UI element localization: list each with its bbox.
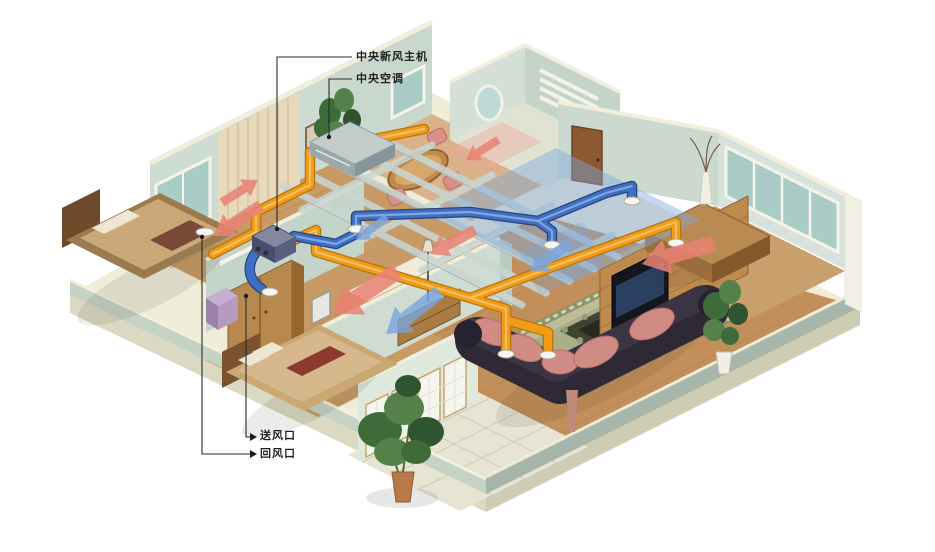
apartment-isometric-illustration bbox=[0, 0, 935, 552]
bathroom-mirror bbox=[476, 86, 502, 120]
label-central-ac: 中央空调 bbox=[356, 73, 404, 85]
label-fresh-air-unit: 中央新风主机 bbox=[356, 51, 428, 63]
label-return-vent: 回风口 bbox=[260, 448, 296, 460]
hvac-diagram: 中央新风主机 中央空调 送风口 回风口 bbox=[0, 0, 935, 552]
label-supply-vent: 送风口 bbox=[260, 430, 296, 442]
